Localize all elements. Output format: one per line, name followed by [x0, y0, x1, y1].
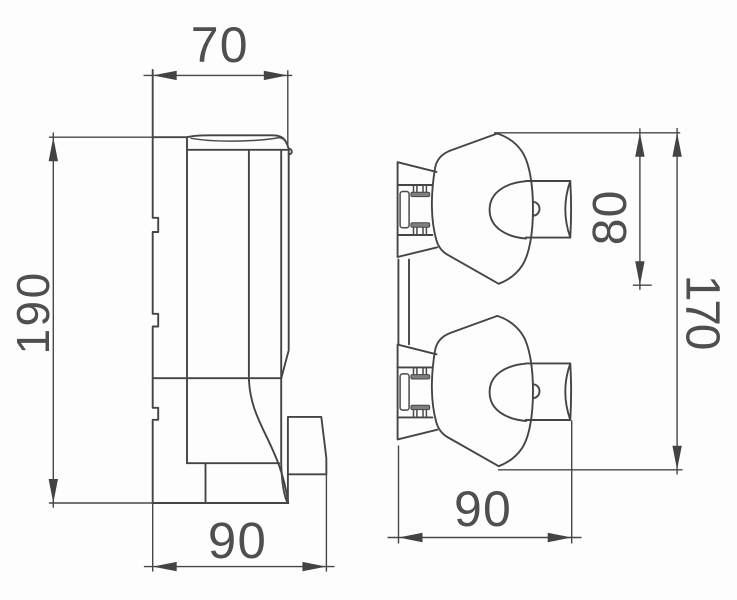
svg-text:90: 90 — [208, 512, 267, 569]
svg-text:70: 70 — [191, 17, 249, 73]
svg-text:80: 80 — [584, 190, 637, 246]
svg-text:190: 190 — [7, 270, 59, 354]
svg-text:90: 90 — [454, 481, 512, 537]
svg-text:170: 170 — [676, 275, 729, 349]
